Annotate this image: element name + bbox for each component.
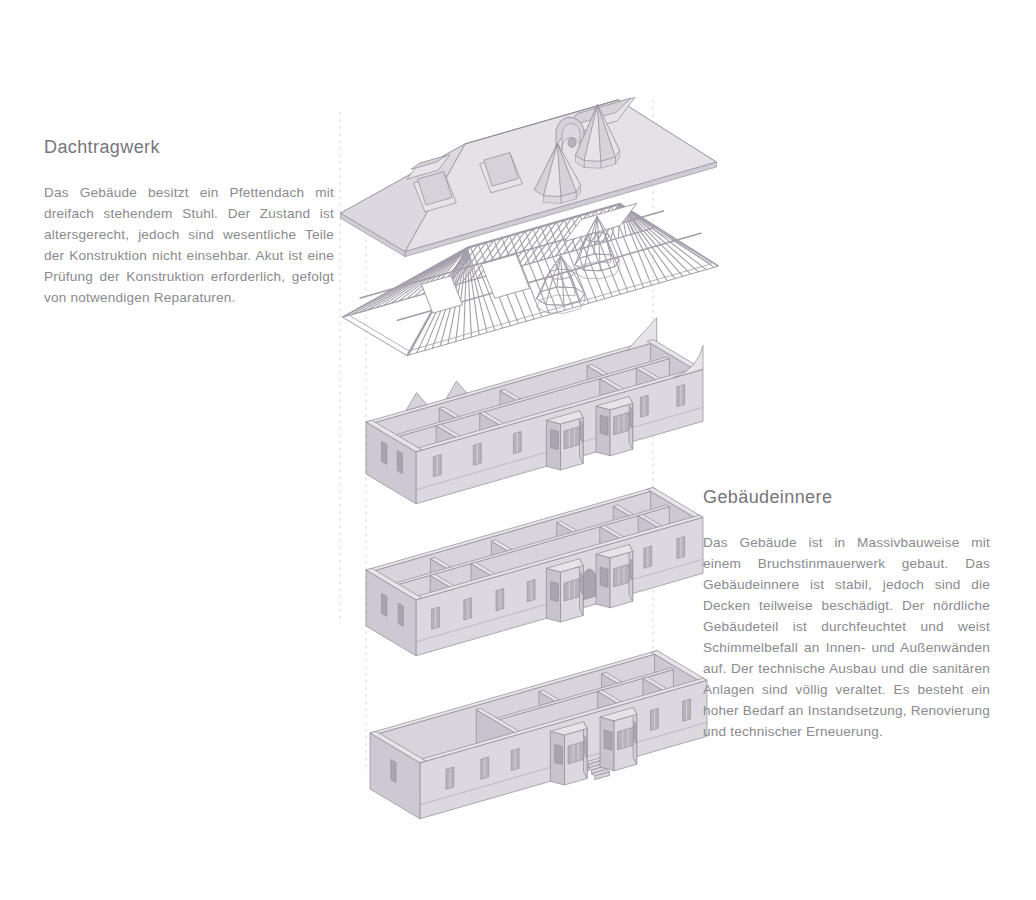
section-body-dachtragwerk: Das Gebäude besitzt ein Pfettendach mit … (44, 182, 334, 308)
section-gebaeudeinnere: Gebäudeinnere Das Gebäude ist in Massivb… (703, 487, 990, 742)
section-title-dachtragwerk: Dachtragwerk (44, 137, 334, 158)
section-dachtragwerk: Dachtragwerk Das Gebäude besitzt ein Pfe… (44, 137, 334, 308)
upper-floor-layer (366, 318, 703, 504)
section-title-gebaeudeinnere: Gebäudeinnere (703, 487, 990, 508)
section-body-gebaeudeinnere: Das Gebäude ist in Massivbauweise mit ei… (703, 532, 990, 742)
middle-floor-layer (366, 488, 703, 656)
exploded-axonometric-diagram (0, 0, 1036, 900)
ground-floor-layer (370, 651, 707, 819)
